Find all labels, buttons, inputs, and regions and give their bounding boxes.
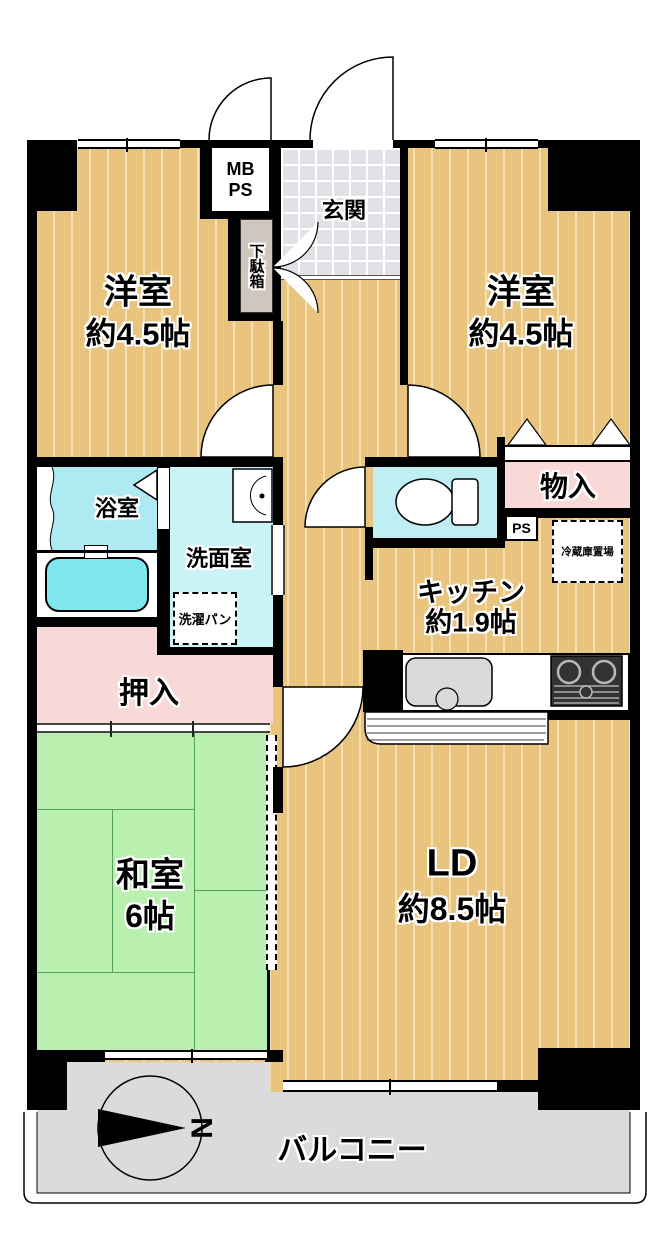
washroom-label: 洗面室 — [186, 541, 252, 573]
storage-bifold-icon — [508, 419, 546, 445]
floor-plan: N MB PS PS 冷蔵庫置場 洗濯パン 洋室 約4.5帖 洋室 約4.5帖 … — [0, 0, 670, 1257]
stove-knob — [580, 686, 592, 698]
pipe-space-label: PS — [512, 520, 531, 536]
living-dining-label: LD — [427, 843, 478, 886]
fridge-space-box: 冷蔵庫置場 — [552, 520, 623, 583]
living-door-swing — [283, 687, 363, 767]
western-left-door-swing — [201, 385, 273, 457]
window — [435, 139, 538, 149]
western-left-label: 洋室 — [104, 265, 172, 314]
sink-drain — [436, 688, 458, 710]
entrance-door-swing — [310, 57, 393, 140]
fridge-space-label: 冷蔵庫置場 — [561, 544, 614, 559]
shoe-box-door-swing — [273, 268, 318, 313]
entrance-label: 玄関 — [322, 193, 366, 225]
window — [105, 1050, 267, 1060]
washbasin-cabinet — [233, 469, 272, 522]
counter-front — [365, 712, 548, 744]
washbasin-faucet — [260, 494, 265, 499]
western-right-size: 約4.5帖 — [468, 309, 573, 354]
laundry-pan-label: 洗濯パン — [179, 609, 232, 628]
meter-box: MB PS — [212, 148, 269, 211]
western-right-label: 洋室 — [487, 265, 555, 314]
compass-needle — [98, 1109, 186, 1147]
japanese-room-size: 6帖 — [125, 891, 175, 937]
japanese-room-label: 和室 — [116, 848, 184, 897]
shoe-box-label: 下駄箱 — [246, 244, 267, 289]
meter-box-door-swing — [209, 78, 271, 140]
balcony-label: バルコニー — [277, 1125, 426, 1169]
shoe-box-door-swing — [273, 222, 318, 267]
storage-label: 物入 — [540, 465, 596, 505]
meter-box-label-ps: PS — [228, 180, 252, 201]
kitchen-size: 約1.9帖 — [425, 601, 517, 640]
window — [78, 139, 180, 149]
oshiire-label: 押入 — [119, 668, 179, 712]
bath-curtain-edge — [37, 467, 54, 550]
western-left-size: 約4.5帖 — [85, 309, 190, 354]
toilet-tank — [452, 479, 478, 525]
fixtures-layer: N — [0, 0, 670, 1257]
western-right-door-swing — [408, 385, 480, 457]
compass-north-label: N — [185, 1117, 218, 1139]
laundry-pan-box: 洗濯パン — [173, 592, 237, 645]
toilet-bowl — [396, 479, 454, 525]
toilet-door-swing — [305, 467, 365, 527]
window — [283, 1080, 497, 1092]
meter-box-label-mb: MB — [227, 159, 255, 180]
living-dining-size: 約8.5帖 — [398, 884, 507, 930]
pipe-space-box: PS — [505, 515, 538, 541]
bathroom-label: 浴室 — [95, 491, 139, 523]
storage-bifold-icon — [592, 419, 630, 445]
